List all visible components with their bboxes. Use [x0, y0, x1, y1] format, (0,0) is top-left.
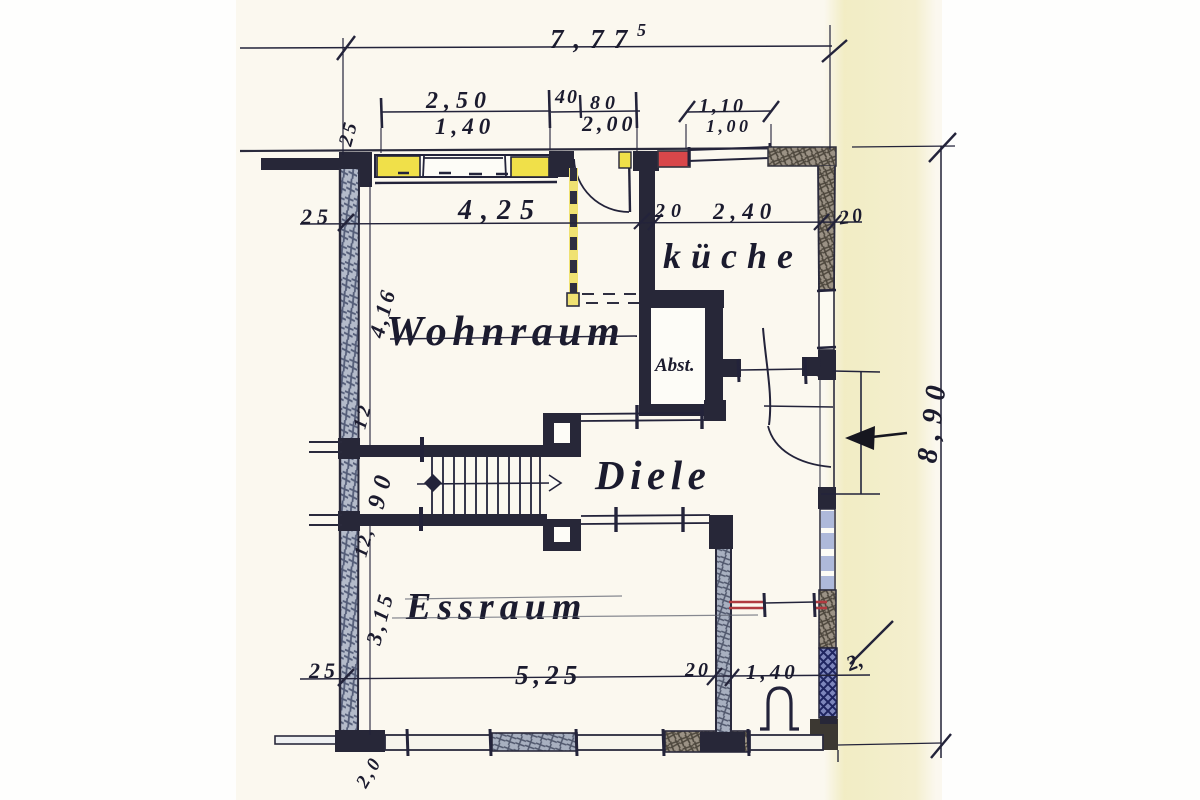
- svg-text:Abst.: Abst.: [654, 355, 695, 376]
- svg-text:4,25: 4,25: [457, 195, 543, 226]
- svg-text:5: 5: [637, 20, 646, 40]
- svg-text:Wohnraum: Wohnraum: [386, 309, 625, 355]
- svg-text:2,40: 2,40: [712, 199, 777, 224]
- svg-text:küche: küche: [663, 236, 803, 276]
- svg-text:20: 20: [837, 204, 867, 230]
- svg-text:1,40: 1,40: [746, 660, 799, 684]
- svg-text:25: 25: [308, 658, 339, 683]
- svg-text:2,50: 2,50: [425, 88, 492, 114]
- svg-text:Essraum: Essraum: [405, 586, 587, 628]
- svg-text:2,00: 2,00: [581, 111, 637, 136]
- svg-text:5,25: 5,25: [515, 660, 582, 690]
- svg-text:1,40: 1,40: [435, 114, 495, 139]
- svg-text:25: 25: [300, 204, 333, 229]
- svg-text:1,10: 1,10: [699, 95, 746, 117]
- svg-text:40: 40: [554, 86, 579, 108]
- svg-text:Diele: Diele: [594, 452, 711, 498]
- svg-text:20: 20: [684, 659, 711, 681]
- svg-text:7,77: 7,77: [550, 24, 637, 54]
- svg-text:1,00: 1,00: [706, 116, 752, 136]
- svg-text:20: 20: [654, 200, 687, 222]
